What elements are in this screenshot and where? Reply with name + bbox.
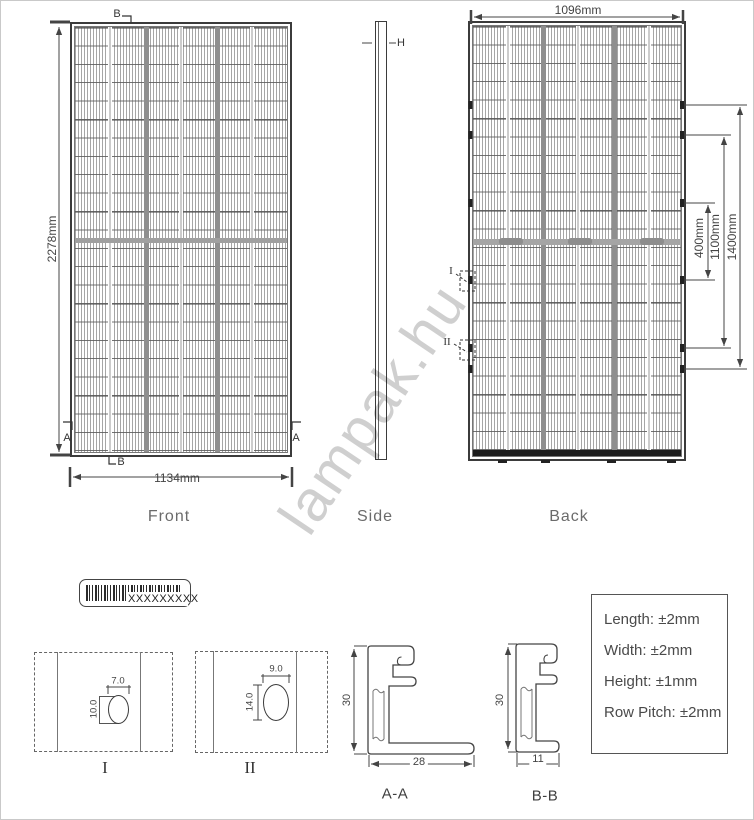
front-width-dim-label: 1134mm	[154, 471, 200, 485]
section-b-bottom-label: B	[117, 456, 124, 468]
back-width-dim-label: 1096mm	[555, 3, 602, 17]
front-height-dim-label: 2278mm	[45, 216, 59, 263]
section-b-brackets	[109, 16, 131, 464]
profile-aa-label: A-A	[382, 786, 409, 803]
detail-ii-height-label: 14.0	[245, 693, 256, 712]
section-a-left-label: A	[63, 432, 70, 444]
back-dim-1100-label: 1100mm	[708, 214, 722, 260]
profile-aa-height-label: 30	[341, 694, 353, 706]
detail-ii-label: II	[244, 758, 255, 778]
mounting-holes	[469, 101, 685, 463]
detail-i-height-label: 10.0	[89, 700, 100, 719]
profile-aa-width-label: 28	[410, 756, 428, 768]
detail-ii-width-label: 9.0	[269, 664, 282, 675]
back-dim-1400-label: 1400mm	[725, 214, 739, 261]
side-view-label: Side	[357, 508, 393, 526]
profile-bb-height-label: 30	[494, 694, 506, 706]
solar-panel-drawing: XXXXXXXXX Length: ±2mm Width: ±2mm Heigh…	[0, 0, 754, 820]
profile-aa	[368, 646, 474, 754]
detail-i-label: I	[102, 758, 108, 778]
section-a-brackets	[63, 422, 301, 430]
back-view-label: Back	[549, 508, 589, 526]
profile-bb-width-label: 11	[529, 753, 546, 765]
back-dim-400-label: 400mm	[692, 218, 706, 258]
back-detail-i-marker: I	[449, 265, 453, 277]
front-view-label: Front	[148, 508, 190, 526]
profile-bb	[516, 644, 559, 752]
detail-i-width-label: 7.0	[111, 676, 124, 687]
back-detail-ii-marker: II	[443, 336, 450, 348]
detail-ii-dimensions	[253, 674, 291, 720]
section-b-top-label: B	[113, 8, 120, 20]
annotation-layer	[1, 1, 754, 820]
section-a-right-label: A	[292, 432, 299, 444]
side-h-label: H	[397, 37, 405, 49]
profile-bb-label: B-B	[532, 788, 559, 805]
